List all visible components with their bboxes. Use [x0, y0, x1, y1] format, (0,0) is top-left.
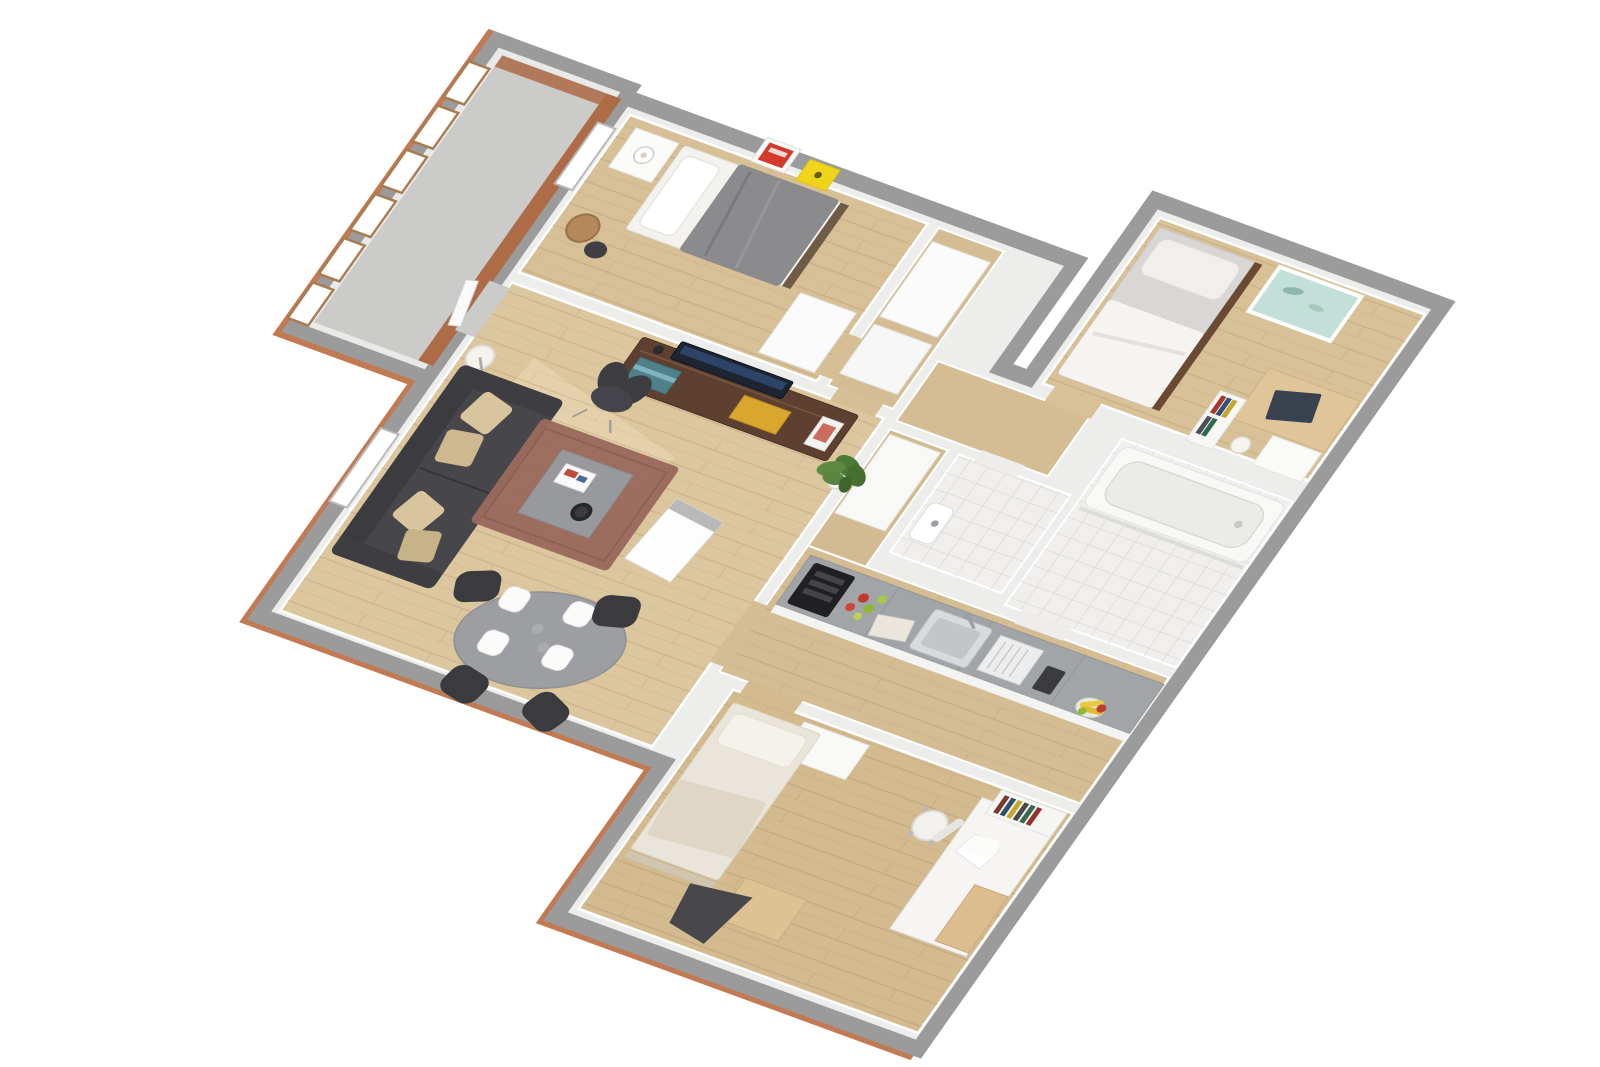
floorplan-3d-render: [0, 0, 1600, 1067]
floorplan-svg: [0, 0, 1600, 1067]
apartment-scene: [7, 0, 1443, 1049]
laptop: [1265, 390, 1322, 423]
